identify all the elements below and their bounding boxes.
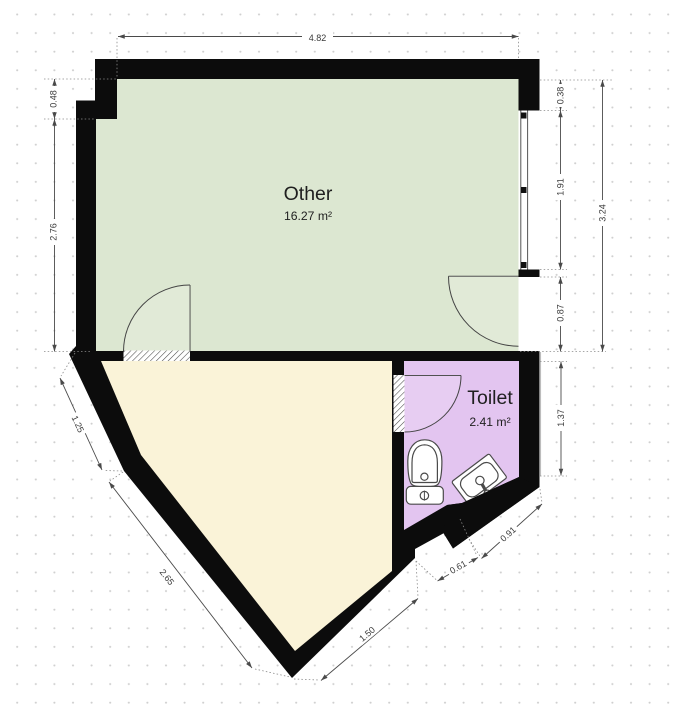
svg-text:0.48: 0.48 bbox=[49, 90, 59, 108]
svg-text:1.37: 1.37 bbox=[556, 409, 566, 427]
svg-text:Toilet: Toilet bbox=[467, 387, 513, 409]
svg-text:1.91: 1.91 bbox=[556, 178, 566, 196]
svg-text:0.38: 0.38 bbox=[556, 87, 566, 105]
svg-text:2.41 m²: 2.41 m² bbox=[469, 415, 510, 429]
svg-text:3.24: 3.24 bbox=[598, 204, 608, 222]
svg-text:0.87: 0.87 bbox=[556, 304, 566, 322]
svg-text:Other: Other bbox=[284, 183, 333, 205]
svg-text:16.27 m²: 16.27 m² bbox=[284, 209, 332, 223]
svg-text:2.76: 2.76 bbox=[49, 223, 59, 241]
svg-text:4.82: 4.82 bbox=[309, 33, 327, 43]
